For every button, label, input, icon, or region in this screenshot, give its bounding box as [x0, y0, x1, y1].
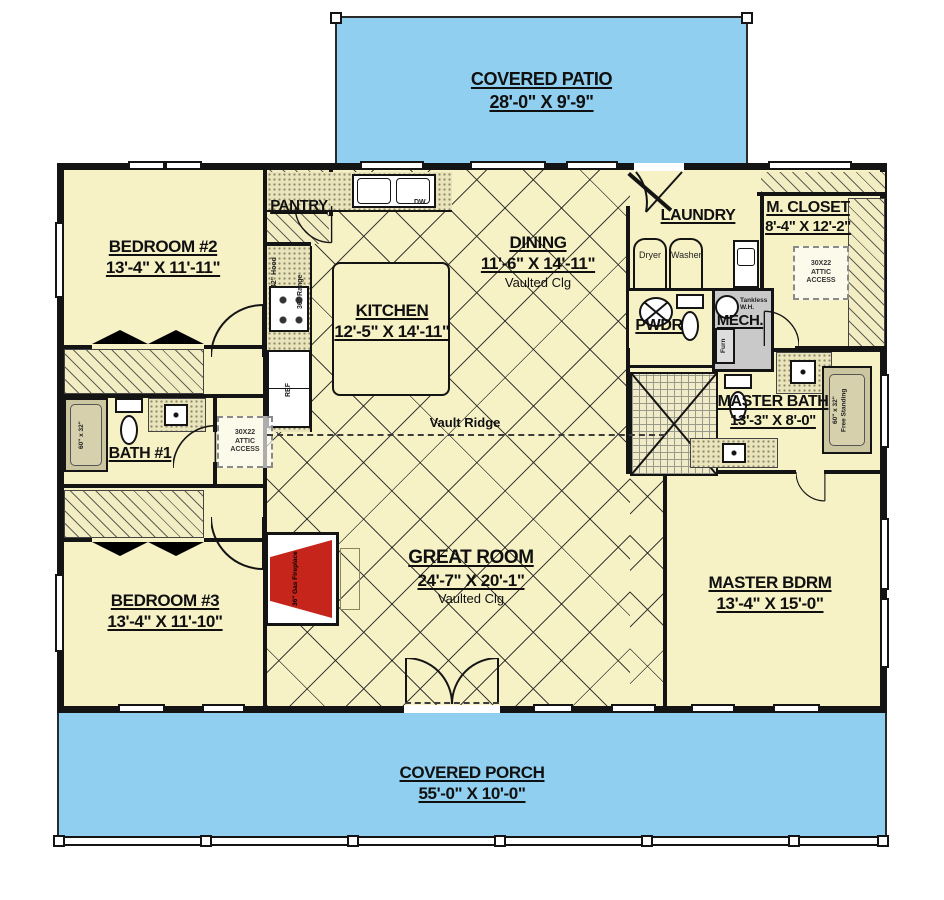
wall	[64, 484, 265, 488]
bath1-toilet-tank	[115, 398, 143, 413]
bifold-doors-bedroom3	[92, 540, 204, 558]
bedroom3-label: BEDROOM #3 13'-4" X 11'-10"	[90, 590, 240, 633]
washer-label: Washer	[671, 250, 701, 260]
mbath-label: MASTER BATH 13'-3" X 8'-0"	[710, 392, 836, 431]
bedroom2-label: BEDROOM #2 13'-4" X 11'-11"	[88, 236, 238, 279]
pantry-name: PANTRY	[266, 197, 332, 216]
great-room-dims: 24'-7" X 20'-1"	[396, 570, 546, 591]
mech-name: MECH.	[706, 312, 774, 331]
bath1-name: BATH #1	[100, 444, 180, 464]
porch-post	[494, 835, 506, 847]
great-room-name: GREAT ROOM	[396, 546, 546, 570]
porch-post	[53, 835, 65, 847]
bath1-tub-label: 60" x 32"	[78, 406, 86, 464]
pwdr-label: PWDR	[628, 316, 690, 336]
ref-label: REF	[284, 372, 293, 408]
vault-ridge-label: Vault Ridge	[400, 415, 530, 430]
window	[773, 704, 820, 713]
wall	[64, 538, 92, 542]
patio-post	[741, 12, 753, 24]
window	[55, 222, 64, 298]
porch-rail	[57, 836, 887, 846]
mbdrm-door	[796, 472, 826, 502]
floor-plan: COVERED PATIO 28'-0" X 9'-9" DW 42" Hood	[0, 0, 944, 900]
window	[880, 374, 889, 448]
kitchen-dims: 12'-5" X 14'-11"	[320, 321, 464, 342]
laundry-label: LAUNDRY	[648, 206, 748, 226]
furnace-label: Furn	[720, 332, 728, 360]
bedroom2-door	[211, 303, 265, 357]
french-door-opening	[404, 705, 500, 713]
pantry-label: PANTRY	[266, 197, 332, 216]
porch-post	[641, 835, 653, 847]
window	[691, 704, 735, 713]
patio-label: COVERED PATIO 28'-0" X 9'-9"	[335, 68, 748, 113]
mbath-sink-bottom	[722, 443, 746, 463]
mbath-sink-top	[790, 360, 816, 384]
window	[165, 161, 202, 170]
mbath-dims: 13'-3" X 8'-0"	[710, 412, 836, 431]
dryer-unit	[633, 238, 667, 290]
window	[611, 704, 656, 713]
mcloset-dims: 8'-4" X 12'-2"	[752, 218, 864, 237]
window	[118, 704, 165, 713]
fireplace-label: 36" Gas Fireplace	[292, 541, 300, 617]
laundry-sink-basin	[737, 248, 755, 266]
tankless-label: Tankless W.H.	[740, 297, 774, 311]
patio-name: COVERED PATIO	[335, 68, 748, 91]
great-room-note: Vaulted Clg	[396, 591, 546, 607]
window	[880, 598, 889, 668]
dining-label: DINING 11'-6" X 14'-11" Vaulted Clg	[468, 232, 608, 291]
wall	[64, 345, 92, 349]
mech-label: MECH.	[706, 312, 774, 331]
pwdr-name: PWDR	[628, 316, 690, 336]
porch-label: COVERED PORCH 55'-0" X 10'-0"	[57, 762, 887, 805]
window	[360, 161, 424, 170]
window	[128, 161, 165, 170]
window	[202, 704, 245, 713]
porch-post	[877, 835, 889, 847]
french-door-threshold	[405, 702, 499, 704]
dryer-label: Dryer	[636, 250, 664, 260]
french-doors	[404, 658, 500, 706]
bifold-doors-bedroom2	[92, 328, 204, 346]
window	[768, 161, 852, 170]
porch-post	[788, 835, 800, 847]
bedroom3-closet	[64, 490, 204, 538]
mbath-name: MASTER BATH	[710, 392, 836, 412]
great-room-floor-ext	[630, 474, 665, 706]
kitchen-name: KITCHEN	[320, 300, 464, 321]
window	[533, 704, 573, 713]
patio-door-opening	[634, 163, 684, 171]
mbath-mbdrm-wall	[824, 470, 885, 474]
mbdrm-dims: 13'-4" X 15'-0"	[700, 593, 840, 614]
patio-post	[330, 12, 342, 24]
attic-access-mcloset: 30X22 ATTIC ACCESS	[793, 246, 849, 300]
mbath-toilet-tank	[724, 374, 752, 389]
dining-dims: 11'-6" X 14'-11"	[468, 253, 608, 274]
mcloset-name: M. CLOSET	[752, 198, 864, 218]
dishwasher-label: DW	[414, 199, 426, 206]
bedroom3-name: BEDROOM #3	[90, 590, 240, 611]
window	[470, 161, 546, 170]
patio-dims: 28'-0" X 9'-9"	[335, 91, 748, 114]
porch-post	[347, 835, 359, 847]
great-room-label: GREAT ROOM 24'-7" X 20'-1" Vaulted Clg	[396, 546, 546, 607]
porch-name: COVERED PORCH	[57, 762, 887, 783]
window	[880, 518, 889, 590]
bedroom3-door	[211, 517, 265, 571]
mcloset-top-wall	[757, 192, 885, 196]
attic-access-hall: 30X22 ATTIC ACCESS	[217, 416, 273, 468]
kitchen-label: KITCHEN 12'-5" X 14'-11"	[320, 300, 464, 343]
dining-name: DINING	[468, 232, 608, 253]
wall	[626, 206, 630, 292]
mcloset-top-hatch	[761, 172, 885, 192]
bedroom3-dims: 13'-4" X 11'-10"	[90, 611, 240, 632]
bedroom2-name: BEDROOM #2	[88, 236, 238, 257]
dining-note: Vaulted Clg	[468, 275, 608, 291]
bath1-label: BATH #1	[100, 444, 180, 464]
bedroom2-closet	[64, 349, 204, 394]
mcloset-label: M. CLOSET 8'-4" X 12'-2"	[752, 198, 864, 237]
mbdrm-name: MASTER BDRM	[700, 572, 840, 593]
washer-unit	[669, 238, 703, 290]
vault-ridge-line	[267, 434, 665, 436]
pwdr-toilet-tank	[676, 294, 704, 309]
sink-basin	[357, 178, 391, 204]
bedroom2-dims: 13'-4" X 11'-11"	[88, 257, 238, 278]
mbdrm-west-wall	[663, 474, 667, 706]
mbdrm-label: MASTER BDRM 13'-4" X 15'-0"	[700, 572, 840, 615]
bath1-toilet-bowl	[120, 415, 138, 445]
laundry-name: LAUNDRY	[648, 206, 748, 226]
porch-dims: 55'-0" X 10'-0"	[57, 783, 887, 804]
window	[566, 161, 618, 170]
porch-post	[200, 835, 212, 847]
bath1-sink	[164, 404, 188, 426]
window	[55, 574, 64, 652]
fireplace-hearth	[340, 548, 360, 610]
range-label: 36" Range	[296, 262, 305, 322]
hood-label: 42" Hood	[270, 256, 279, 290]
